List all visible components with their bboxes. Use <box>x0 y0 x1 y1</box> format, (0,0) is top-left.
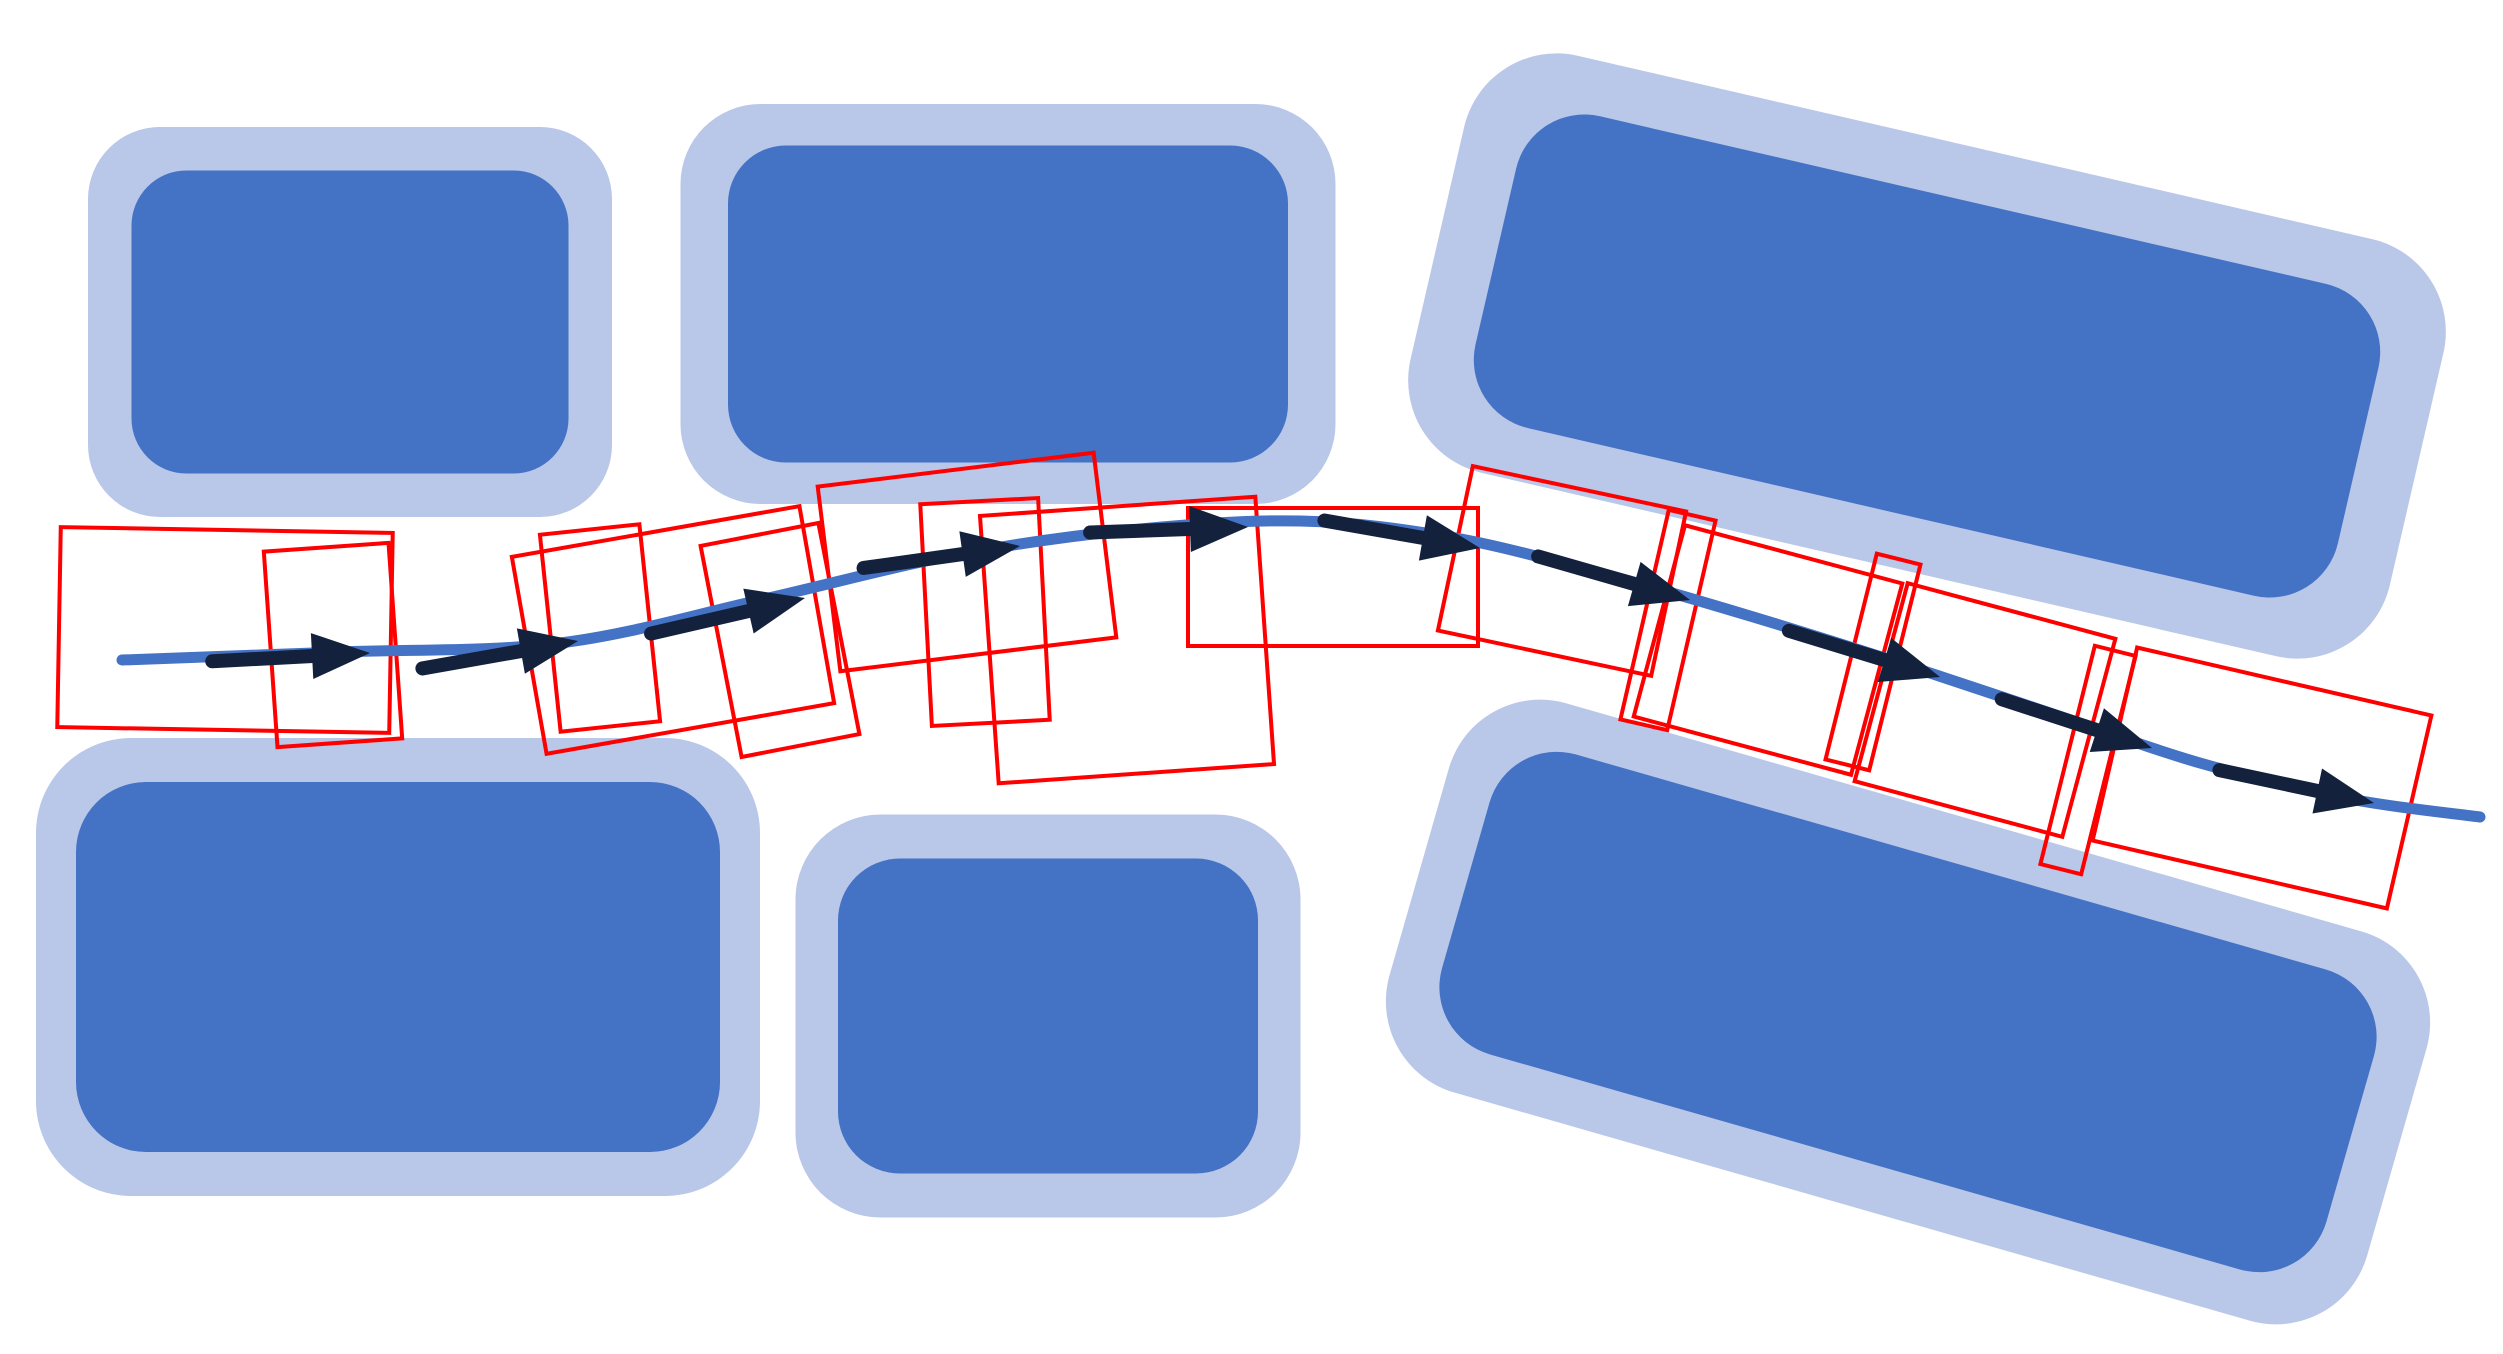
arrow-head-icon <box>311 630 371 679</box>
obstacle-top-left <box>88 127 612 517</box>
direction-arrow <box>1089 504 1249 555</box>
obstacle-body <box>838 859 1258 1174</box>
corridor-box <box>2040 646 2135 874</box>
obstacle-top-middle <box>681 104 1336 504</box>
direction-arrow <box>211 630 371 684</box>
obstacle-body <box>76 782 720 1152</box>
arrow-head-icon <box>2090 708 2159 770</box>
corridor-box <box>57 527 392 733</box>
arrow-shaft <box>2002 699 2107 733</box>
obstacle-body <box>132 171 569 474</box>
obstacle-top-right <box>1389 34 2465 677</box>
arrow-shaft <box>864 553 973 568</box>
arrow-shaft <box>1090 529 1200 533</box>
direction-arrow <box>1995 677 2159 770</box>
direction-arrow <box>2215 748 2379 826</box>
arrow-shaft <box>1789 631 1894 663</box>
direction-arrow <box>860 523 1023 591</box>
arrow-shaft <box>1538 556 1644 586</box>
direction-arrow <box>646 576 810 656</box>
arrow-shaft <box>2219 770 2327 793</box>
obstacle-body <box>728 146 1288 463</box>
obstacle-bottom-right <box>1363 677 2452 1347</box>
obstacle-bottom-left <box>36 738 760 1196</box>
arrow-head-icon <box>1189 504 1249 552</box>
obstacle-bottom-middle <box>796 815 1301 1218</box>
figure-container <box>0 0 2503 1354</box>
corridor-diagram-svg <box>0 0 2503 1354</box>
arrow-head-icon <box>743 576 810 634</box>
arrow-shaft <box>212 656 322 662</box>
arrow-shaft <box>1324 521 1432 540</box>
direction-arrow <box>1782 609 1947 699</box>
corridor-box <box>1620 510 1715 730</box>
